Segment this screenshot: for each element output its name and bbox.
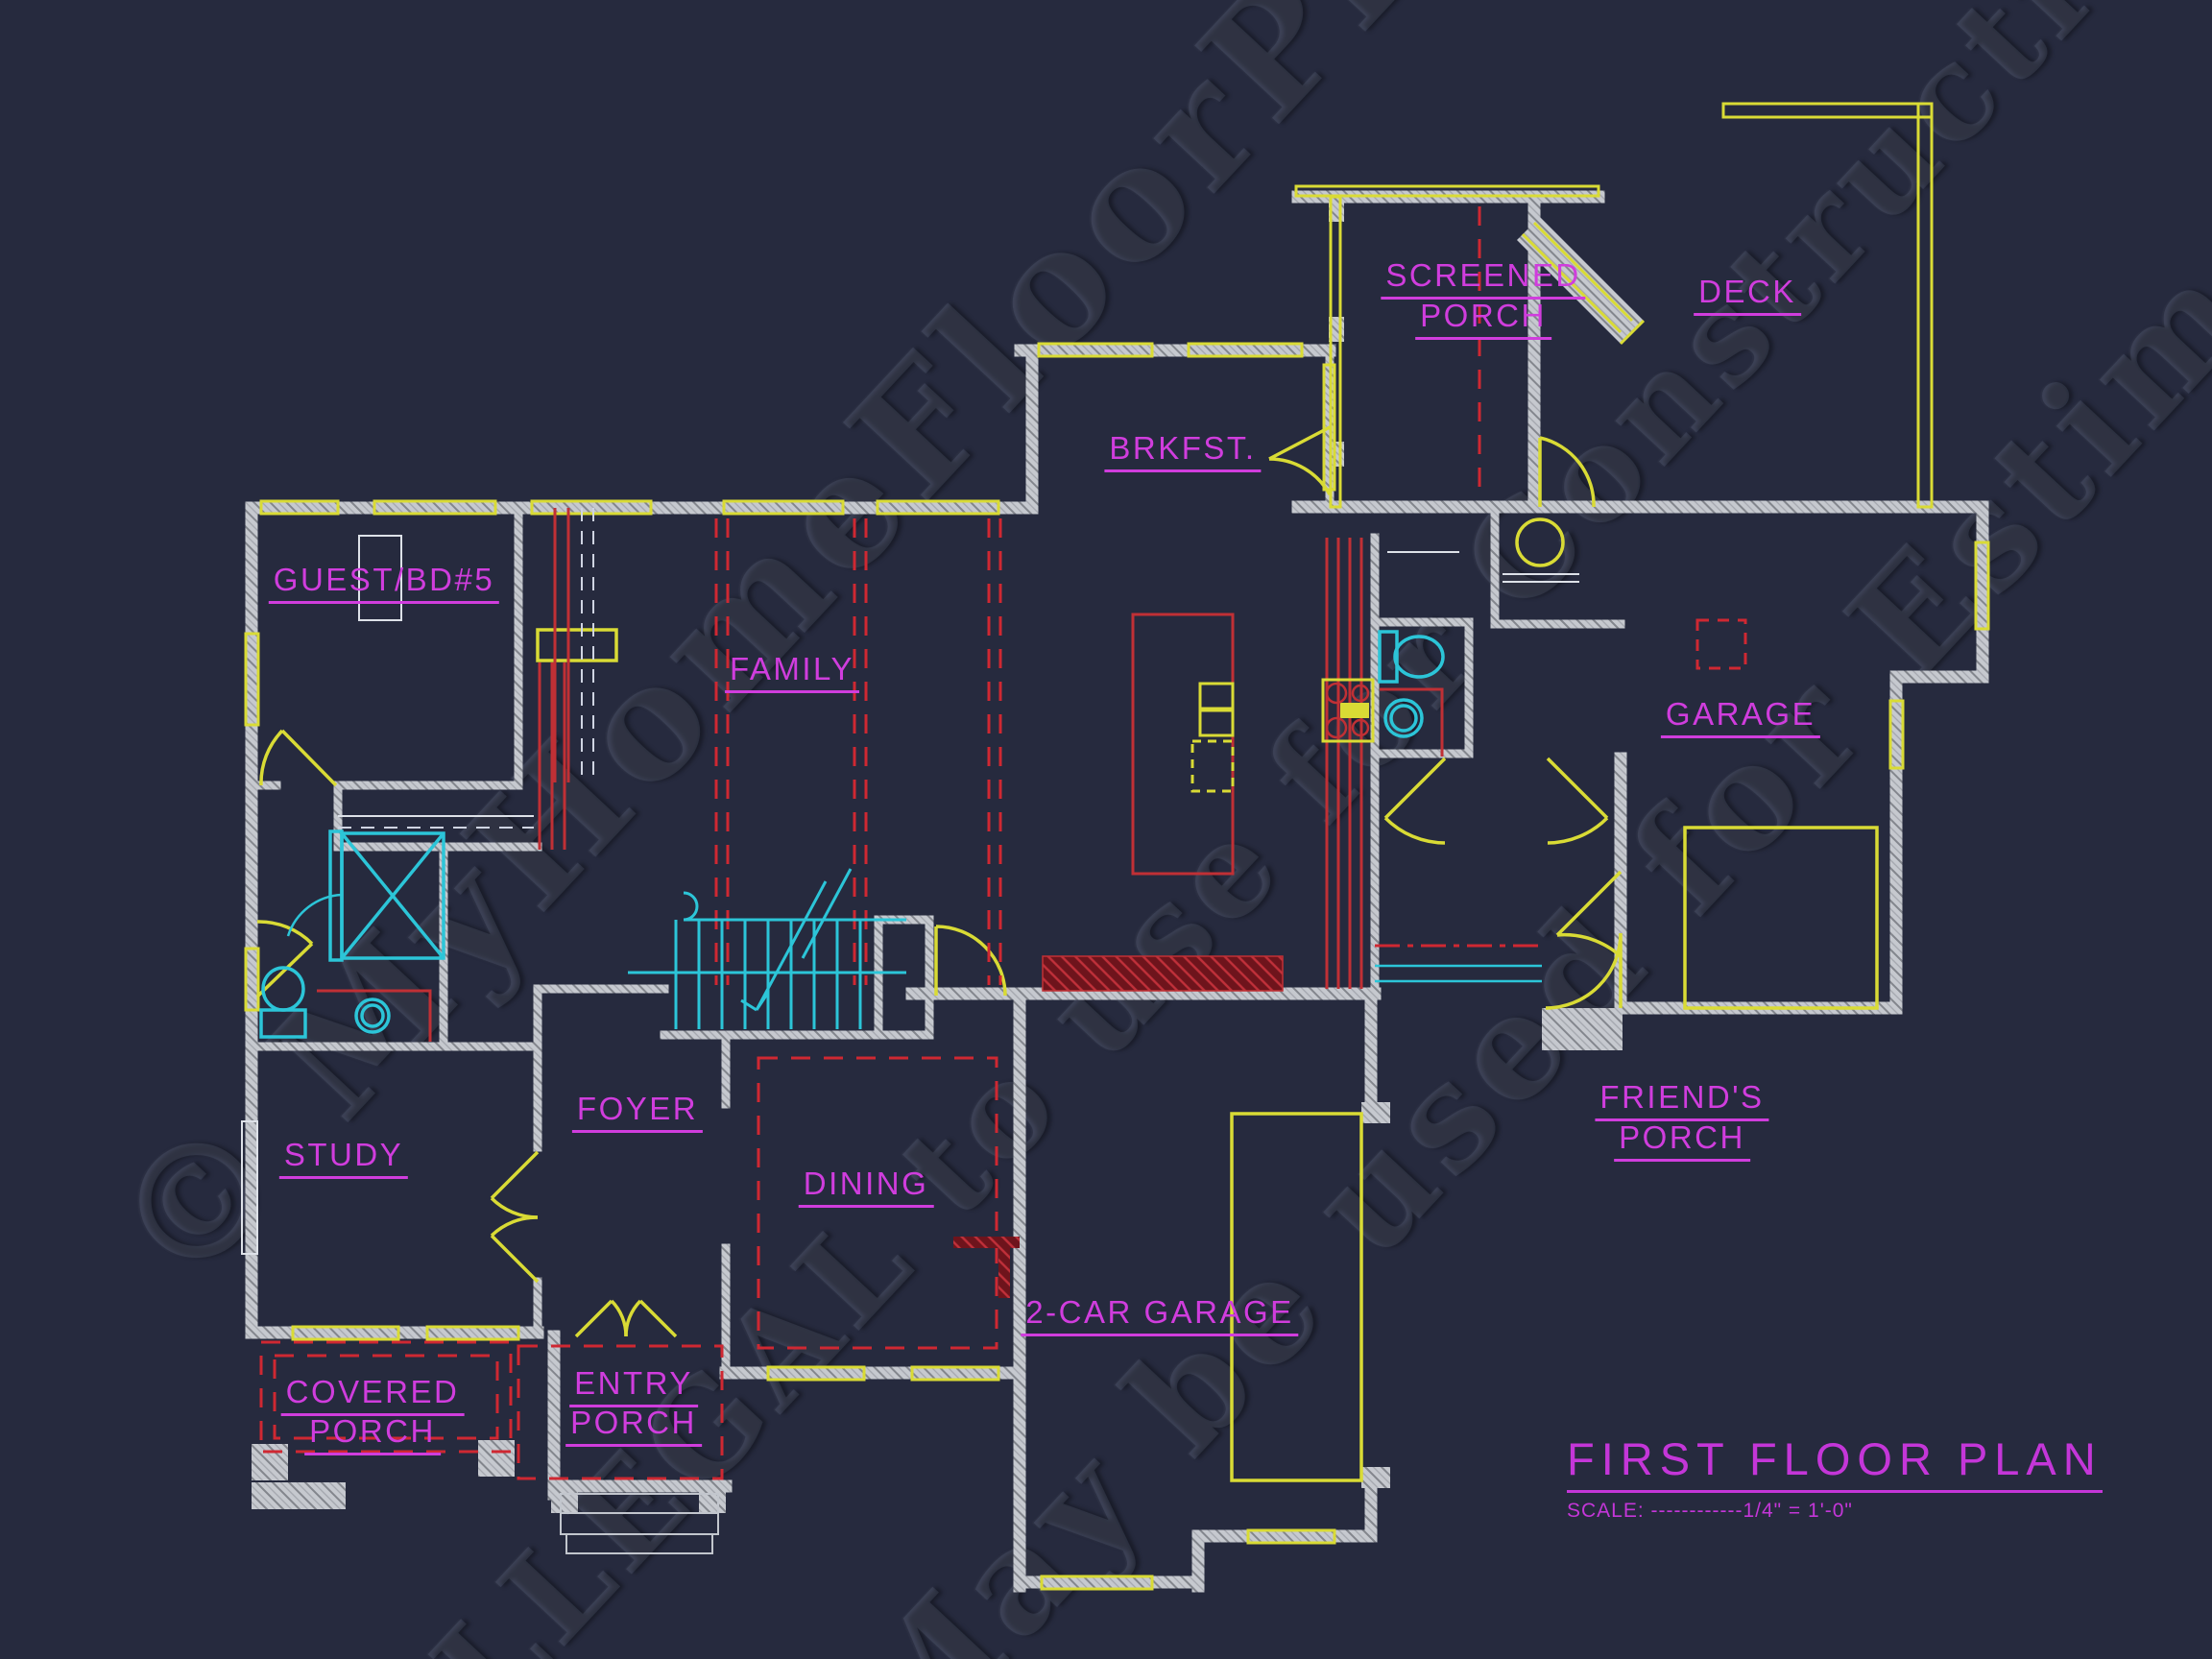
label-garage: GARAGE [1661,696,1820,738]
windows [246,186,1988,1589]
sink-bowl-1 [1200,684,1233,709]
label-two-car-garage: 2-CAR GARAGE [1021,1294,1298,1336]
kitchen-island [1133,614,1233,874]
label-family: FAMILY [725,651,859,693]
attic-access [1697,620,1745,668]
label-screened-porch-1: SCREENED [1381,257,1585,300]
label-friends-porch-2: PORCH [1614,1119,1750,1162]
label-screened-porch-2: PORCH [1415,298,1551,340]
floor-plan-page: © MyHomeFloorPlans.com ILLEGAL to use fo… [0,0,2212,1659]
guest-toilet-bowl [263,968,303,1010]
label-friends-porch-1: FRIEND'S [1595,1079,1768,1121]
sink-bowl-2 [1200,710,1233,735]
dishwasher [1192,741,1233,791]
exterior-walls [252,197,1983,1586]
powder-toilet-bowl [1395,637,1443,677]
guest-toilet-tank [261,1010,305,1037]
label-foyer: FOYER [572,1091,703,1133]
plan-title: FIRST FLOOR PLAN [1567,1432,2103,1493]
label-guest-bd5: GUEST/BD#5 [269,562,499,604]
label-entry-porch-2: PORCH [565,1405,702,1447]
label-study: STUDY [279,1137,408,1179]
label-brkfst: BRKFST. [1104,430,1261,472]
label-dining: DINING [799,1166,934,1208]
entry-steps [561,1494,718,1553]
label-deck: DECK [1694,274,1801,316]
posts-and-steps [252,197,1644,1553]
water-heater [1517,519,1563,565]
label-covered-porch-1: COVERED [281,1374,465,1416]
label-entry-porch-1: ENTRY [569,1365,698,1407]
label-covered-porch-2: PORCH [304,1413,441,1455]
title-block: FIRST FLOOR PLAN SCALE: ------------1/4"… [1567,1432,2103,1523]
plan-scale: SCALE: ------------1/4" = 1'-0" [1567,1500,2103,1523]
golf-garage-door [1685,828,1877,1008]
